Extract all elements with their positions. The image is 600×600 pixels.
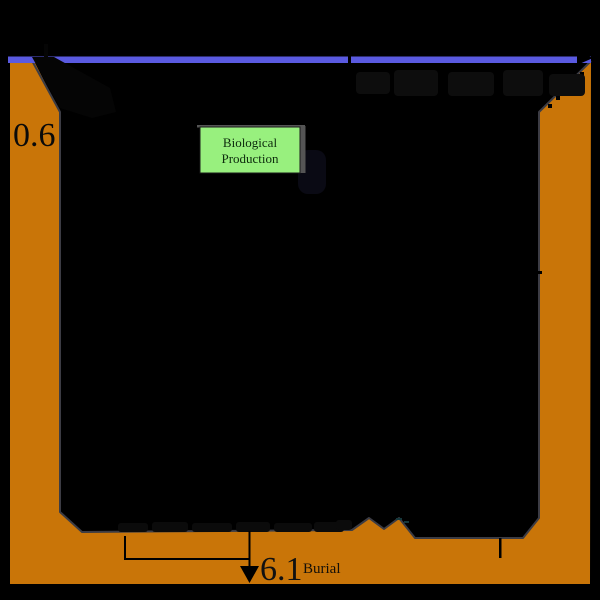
ocean-surface-line (8, 57, 591, 64)
bottom-right-tick (499, 538, 502, 558)
coastal-input-tick (44, 44, 48, 70)
bio-box-right-shadow (300, 126, 306, 173)
burial-flux-value: 6.1 (260, 551, 303, 588)
right-wall-tick (534, 271, 542, 274)
diagram-canvas: Biological Production 0.6 6.1 Burial (0, 0, 600, 600)
left-flux-value: 0.6 (13, 117, 56, 154)
surface-tick (348, 50, 351, 67)
bio-box-label-line2: Production (221, 151, 279, 166)
bio-box-label-line1: Biological (223, 135, 278, 150)
bio-box-body (200, 127, 300, 173)
ocean-flux-diagram: Biological Production 0.6 6.1 Burial (0, 0, 600, 600)
burial-label: Burial (303, 561, 341, 577)
biological-production-box: Biological Production (197, 125, 306, 173)
